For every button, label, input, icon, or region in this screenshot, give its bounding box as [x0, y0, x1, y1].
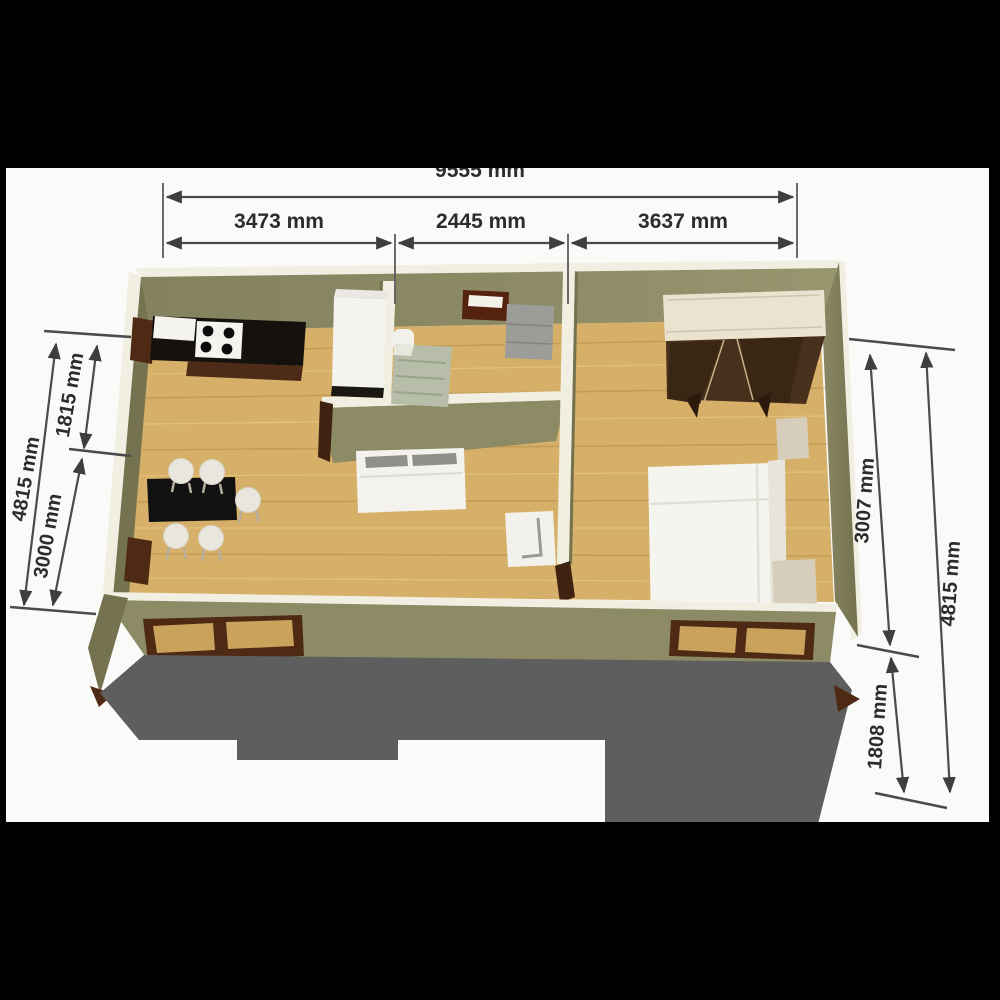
building	[88, 260, 862, 824]
dimension-label-deck-depth: 1808 mm	[864, 683, 892, 770]
dimension-label-kitchen-width: 3473 mm	[234, 210, 324, 233]
dimension-line-segment	[891, 658, 904, 792]
left-wall-window	[124, 537, 152, 585]
dimension-label-bathroom-width: 2445 mm	[436, 210, 526, 233]
right-black-edge	[989, 0, 1000, 1000]
bed	[648, 459, 787, 626]
deck-shadow	[100, 655, 860, 824]
vanity-cabinet	[505, 304, 554, 360]
front-window-right	[669, 620, 815, 660]
sofa	[356, 448, 466, 513]
dining-table	[147, 477, 237, 522]
nightstand	[776, 417, 809, 460]
side-cabinet	[505, 511, 556, 567]
floor-plan-image: 9555 mm 3473 mm 2445 mm 3637 mm 4815 mm …	[0, 0, 1000, 1000]
dimension-label-right-overall-depth: 4815 mm	[937, 540, 965, 627]
left-black-edge	[0, 0, 6, 1000]
fridge	[331, 289, 388, 398]
dimension-label-bedroom-depth: 3007 mm	[851, 457, 879, 544]
stove	[195, 321, 243, 359]
nightstand	[772, 559, 817, 608]
front-window-left	[143, 615, 304, 661]
dimension-label-left-segment1: 1815 mm	[52, 351, 89, 439]
floor-plan-scene: 9555 mm 3473 mm 2445 mm 3637 mm 4815 mm …	[0, 0, 1000, 1000]
mirror-cabinet	[462, 290, 509, 321]
dimension-label-bedroom-width: 3637 mm	[638, 210, 728, 233]
bottom-black-bar	[0, 822, 1000, 1000]
shower-unit	[391, 344, 452, 407]
top-black-bar	[0, 0, 1000, 168]
wardrobe	[663, 290, 826, 418]
right-dimensions: 3007 mm 1808 mm 4815 mm	[849, 339, 965, 808]
kitchen-sink-unit	[153, 316, 196, 341]
